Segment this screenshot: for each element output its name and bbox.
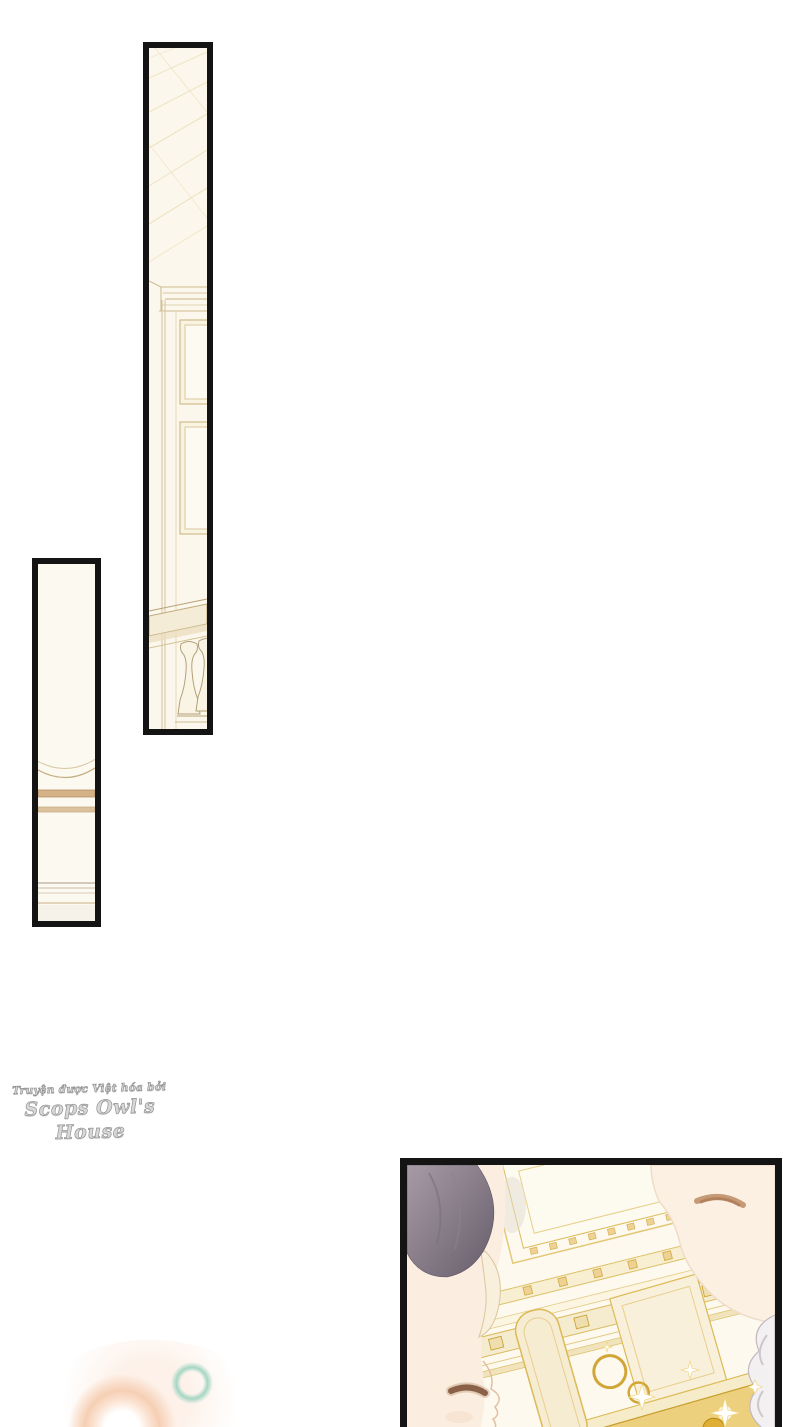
watermark-group-name: Scops Owl's House	[10, 1095, 171, 1147]
panel-wall-column	[32, 558, 101, 927]
arch-curves	[38, 750, 95, 778]
wall-trim-lines	[162, 300, 176, 729]
hair-curls	[748, 1315, 775, 1427]
interior-wall-art	[149, 48, 207, 729]
panel-face-closeup	[400, 1158, 782, 1427]
wainscot-lines	[38, 883, 95, 903]
comic-page: Truyện được Việt hóa bởi Scops Owl's Hou…	[0, 0, 800, 1427]
ceiling-beams	[149, 48, 207, 262]
bokeh-haze	[40, 1340, 260, 1427]
wall-column-art	[38, 564, 95, 921]
wall-panels	[180, 320, 207, 534]
bokeh-circle-pink	[67, 1373, 177, 1427]
balustrade	[149, 599, 207, 722]
translator-watermark: Truyện được Việt hóa bởi Scops Owl's Hou…	[9, 1081, 171, 1147]
face-closeup-art	[407, 1165, 775, 1427]
base-shadow	[38, 905, 95, 921]
bokeh-circle-teal	[170, 1361, 214, 1405]
cornice-moulding	[149, 281, 207, 311]
gold-trim-bands	[38, 790, 95, 812]
panel-interior-wall	[143, 42, 213, 735]
